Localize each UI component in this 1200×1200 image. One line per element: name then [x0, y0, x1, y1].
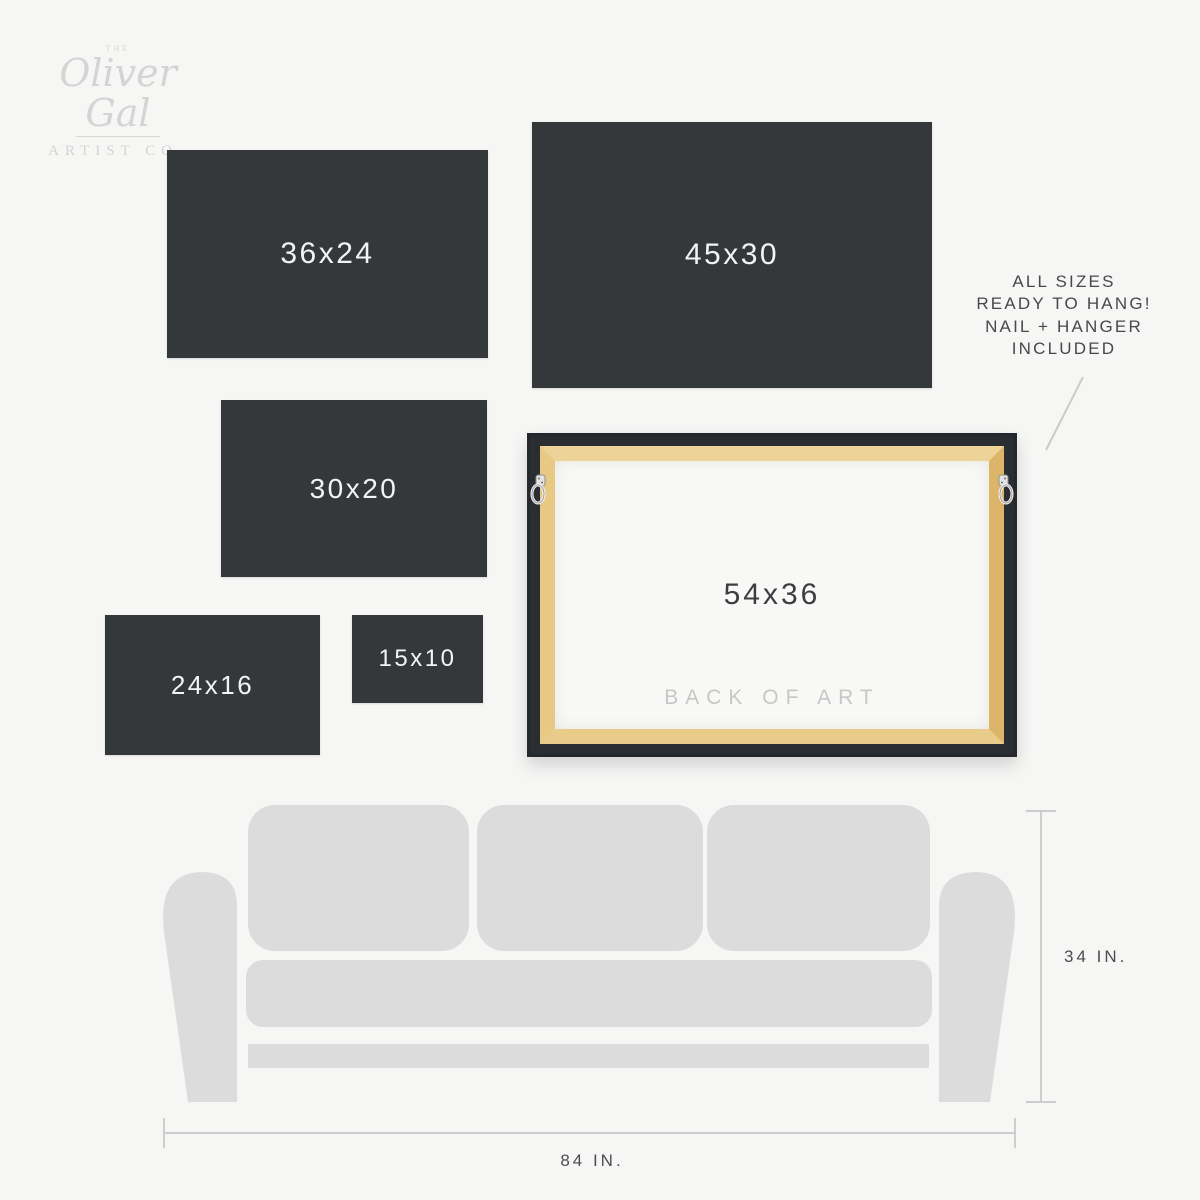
- sofa-back-cushion-left: [248, 805, 469, 951]
- size-panel-label: 24x16: [171, 670, 254, 701]
- ready-to-hang-annotation: ALL SIZES READY TO HANG! NAIL + HANGER I…: [954, 271, 1174, 361]
- hanger-ring-right-icon: [995, 474, 1015, 506]
- size-guide-infographic: THE Oliver Gal ARTIST CO. 36x24 45x30 30…: [0, 0, 1200, 1200]
- size-panel-15x10: 15x10: [352, 615, 483, 703]
- size-panel-label: 15x10: [379, 645, 457, 673]
- size-panel-label: 45x30: [685, 238, 779, 272]
- sofa-back-cushion-right: [707, 805, 930, 951]
- annotation-line: ALL SIZES: [954, 271, 1174, 293]
- size-panel-45x30: 45x30: [532, 122, 932, 388]
- back-of-art-frame: 54x36 BACK OF ART: [527, 433, 1017, 757]
- logo-divider: [76, 136, 160, 137]
- sofa-back-cushion-middle: [477, 805, 703, 951]
- size-panel-label: 36x24: [280, 237, 374, 271]
- annotation-line: NAIL + HANGER: [954, 316, 1174, 338]
- sofa-base-bar: [248, 1044, 929, 1068]
- sofa-height-label: 34 IN.: [1064, 947, 1127, 967]
- size-panel-36x24: 36x24: [167, 150, 488, 358]
- hanger-ring-left-icon: [529, 474, 549, 506]
- size-panel-30x20: 30x20: [221, 400, 487, 577]
- size-panel-24x16: 24x16: [105, 615, 320, 755]
- sofa-armrest-left: [163, 872, 237, 1102]
- logo-name-text: Oliver Gal: [30, 53, 206, 133]
- annotation-line: INCLUDED: [954, 338, 1174, 360]
- annotation-line: READY TO HANG!: [954, 293, 1174, 315]
- sofa-armrest-right: [939, 872, 1015, 1102]
- size-panel-label: 30x20: [310, 473, 399, 505]
- back-of-art-label: BACK OF ART: [530, 686, 1014, 710]
- frame-size-label: 54x36: [530, 578, 1014, 612]
- brand-logo: THE Oliver Gal ARTIST CO.: [30, 44, 206, 160]
- sofa-width-label: 84 IN.: [492, 1151, 692, 1171]
- sofa-silhouette: [163, 805, 1015, 1102]
- sofa-seat-cushion: [246, 960, 932, 1027]
- annotation-pointer-line: [1046, 377, 1083, 450]
